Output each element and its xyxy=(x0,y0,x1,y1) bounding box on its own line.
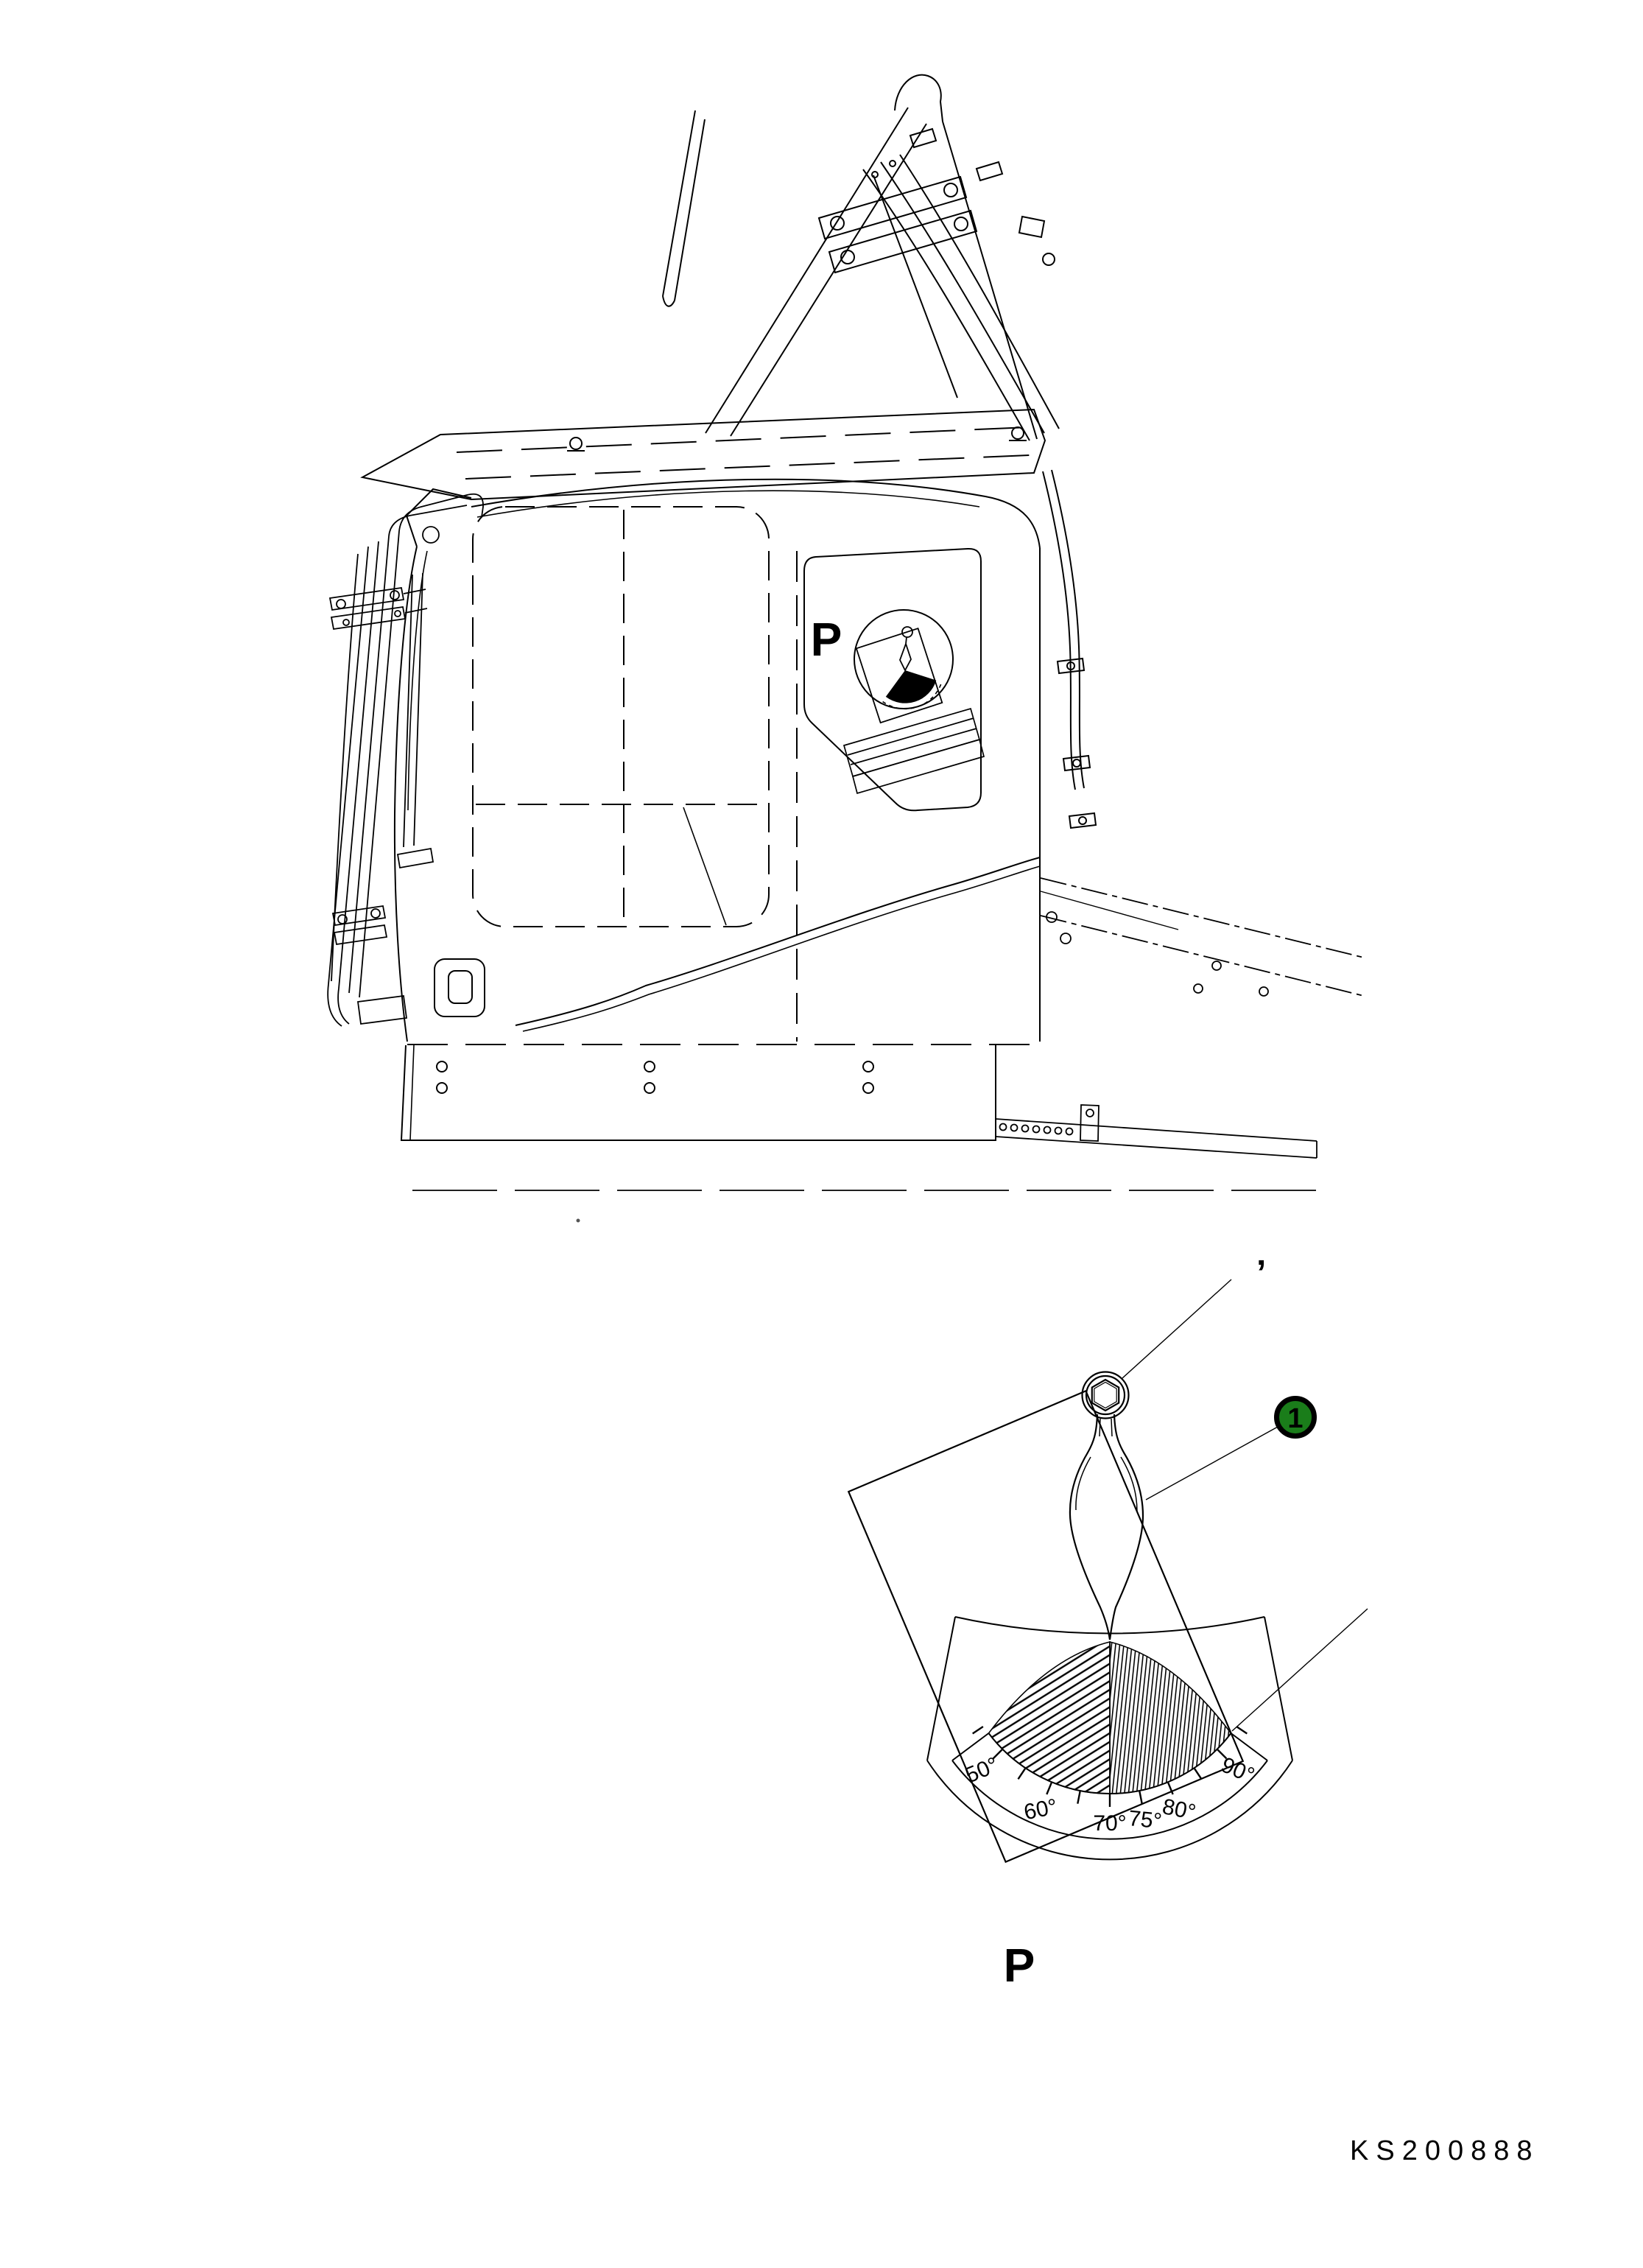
leader-prime-mark: ’ xyxy=(1256,1254,1266,1293)
callout-1[interactable]: 1 xyxy=(1277,1399,1315,1436)
handrail-assembly xyxy=(328,494,483,1026)
machine-drawing: P xyxy=(328,75,1364,1223)
frame-rails xyxy=(412,878,1364,1190)
mini-angle-fan-icon xyxy=(876,661,946,717)
machine-location-label: P xyxy=(811,613,842,666)
rear-louver xyxy=(844,709,984,793)
detail-view: 50° 60° 70° 75° 80° 90° ’ xyxy=(848,1254,1368,1992)
door-handle-recess xyxy=(435,959,485,1017)
stray-dot xyxy=(577,1219,580,1223)
scale-label-50: 50° xyxy=(962,1753,1002,1788)
scale-label-80: 80° xyxy=(1161,1794,1198,1825)
pendulum-leader-line xyxy=(1122,1279,1231,1378)
canopy-roof-plate xyxy=(362,410,1045,499)
decal-location-marker xyxy=(854,610,953,723)
hex-nut-icon xyxy=(1092,1380,1119,1411)
plate-leader-line xyxy=(1232,1609,1368,1731)
scale-label-75: 75° xyxy=(1127,1806,1163,1833)
scale-label-60: 60° xyxy=(1022,1794,1060,1825)
cab-body xyxy=(395,480,1040,1045)
cab-base-skirt xyxy=(401,1045,996,1140)
rear-quarter-window xyxy=(804,549,981,810)
callout-leader-line xyxy=(1146,1427,1278,1500)
scale-label-70: 70° xyxy=(1093,1811,1126,1836)
boom-structure xyxy=(663,75,1037,439)
lifting-eye-icon xyxy=(567,427,1027,451)
hatch-left-sector xyxy=(989,1642,1111,1794)
hatch-right-sector xyxy=(1110,1642,1231,1794)
callout-number: 1 xyxy=(1287,1403,1303,1434)
scale-label-90: 90° xyxy=(1217,1753,1258,1788)
drawing-code: KS200888 xyxy=(1350,2135,1540,2166)
decal-plate xyxy=(848,1391,1243,1861)
parts-catalog-page: P xyxy=(0,0,1643,2268)
angle-scale-fan: 50° 60° 70° 75° 80° 90° xyxy=(927,1617,1292,1859)
front-window xyxy=(473,507,769,927)
detail-view-label: P xyxy=(1004,1939,1035,1992)
plumb-bob-pendulum xyxy=(1070,1372,1143,1640)
parts-diagram: P xyxy=(0,0,1643,2268)
